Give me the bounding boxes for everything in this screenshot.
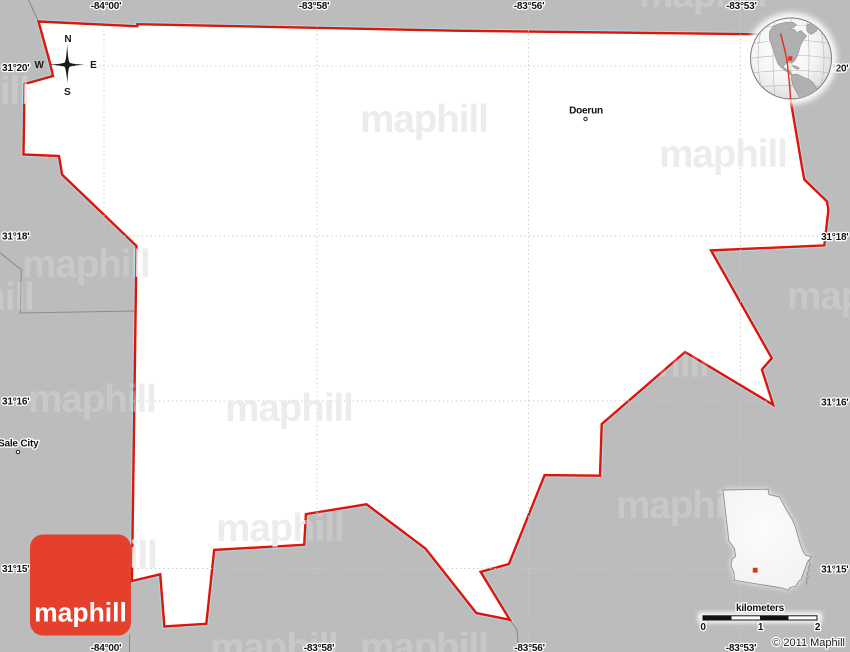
svg-text:maphill: maphill [581,343,709,386]
svg-text:31°18': 31°18' [2,232,29,243]
svg-text:-83°58': -83°58' [304,643,335,652]
svg-text:W: W [34,60,44,71]
svg-text:Sale City: Sale City [0,439,39,450]
svg-text:kilometers: kilometers [736,603,785,614]
svg-text:0: 0 [700,622,706,633]
svg-text:31°20': 31°20' [2,63,29,74]
svg-text:31°16': 31°16' [821,398,848,409]
svg-text:31°18': 31°18' [821,232,848,243]
svg-text:-83°58': -83°58' [299,1,330,12]
svg-text:maphill: maphill [34,598,127,628]
svg-text:1: 1 [758,622,764,633]
svg-text:E: E [90,60,97,71]
svg-text:-83°53': -83°53' [726,643,757,652]
svg-text:© 2011 Maphill: © 2011 Maphill [772,637,845,649]
svg-text:maphill: maphill [0,276,34,319]
svg-text:31°15': 31°15' [821,565,848,576]
svg-text:Doerun: Doerun [569,106,603,117]
svg-text:31°16': 31°16' [2,397,29,408]
svg-text:-84°00': -84°00' [91,643,122,652]
svg-text:31°15': 31°15' [2,564,29,575]
svg-text:-83°53': -83°53' [726,1,757,12]
svg-text:2: 2 [815,622,821,633]
svg-text:-84°00': -84°00' [91,1,122,12]
svg-text:S: S [64,87,71,98]
svg-text:-83°56': -83°56' [514,1,545,12]
svg-text:-83°56': -83°56' [514,643,545,652]
svg-text:N: N [64,34,71,45]
